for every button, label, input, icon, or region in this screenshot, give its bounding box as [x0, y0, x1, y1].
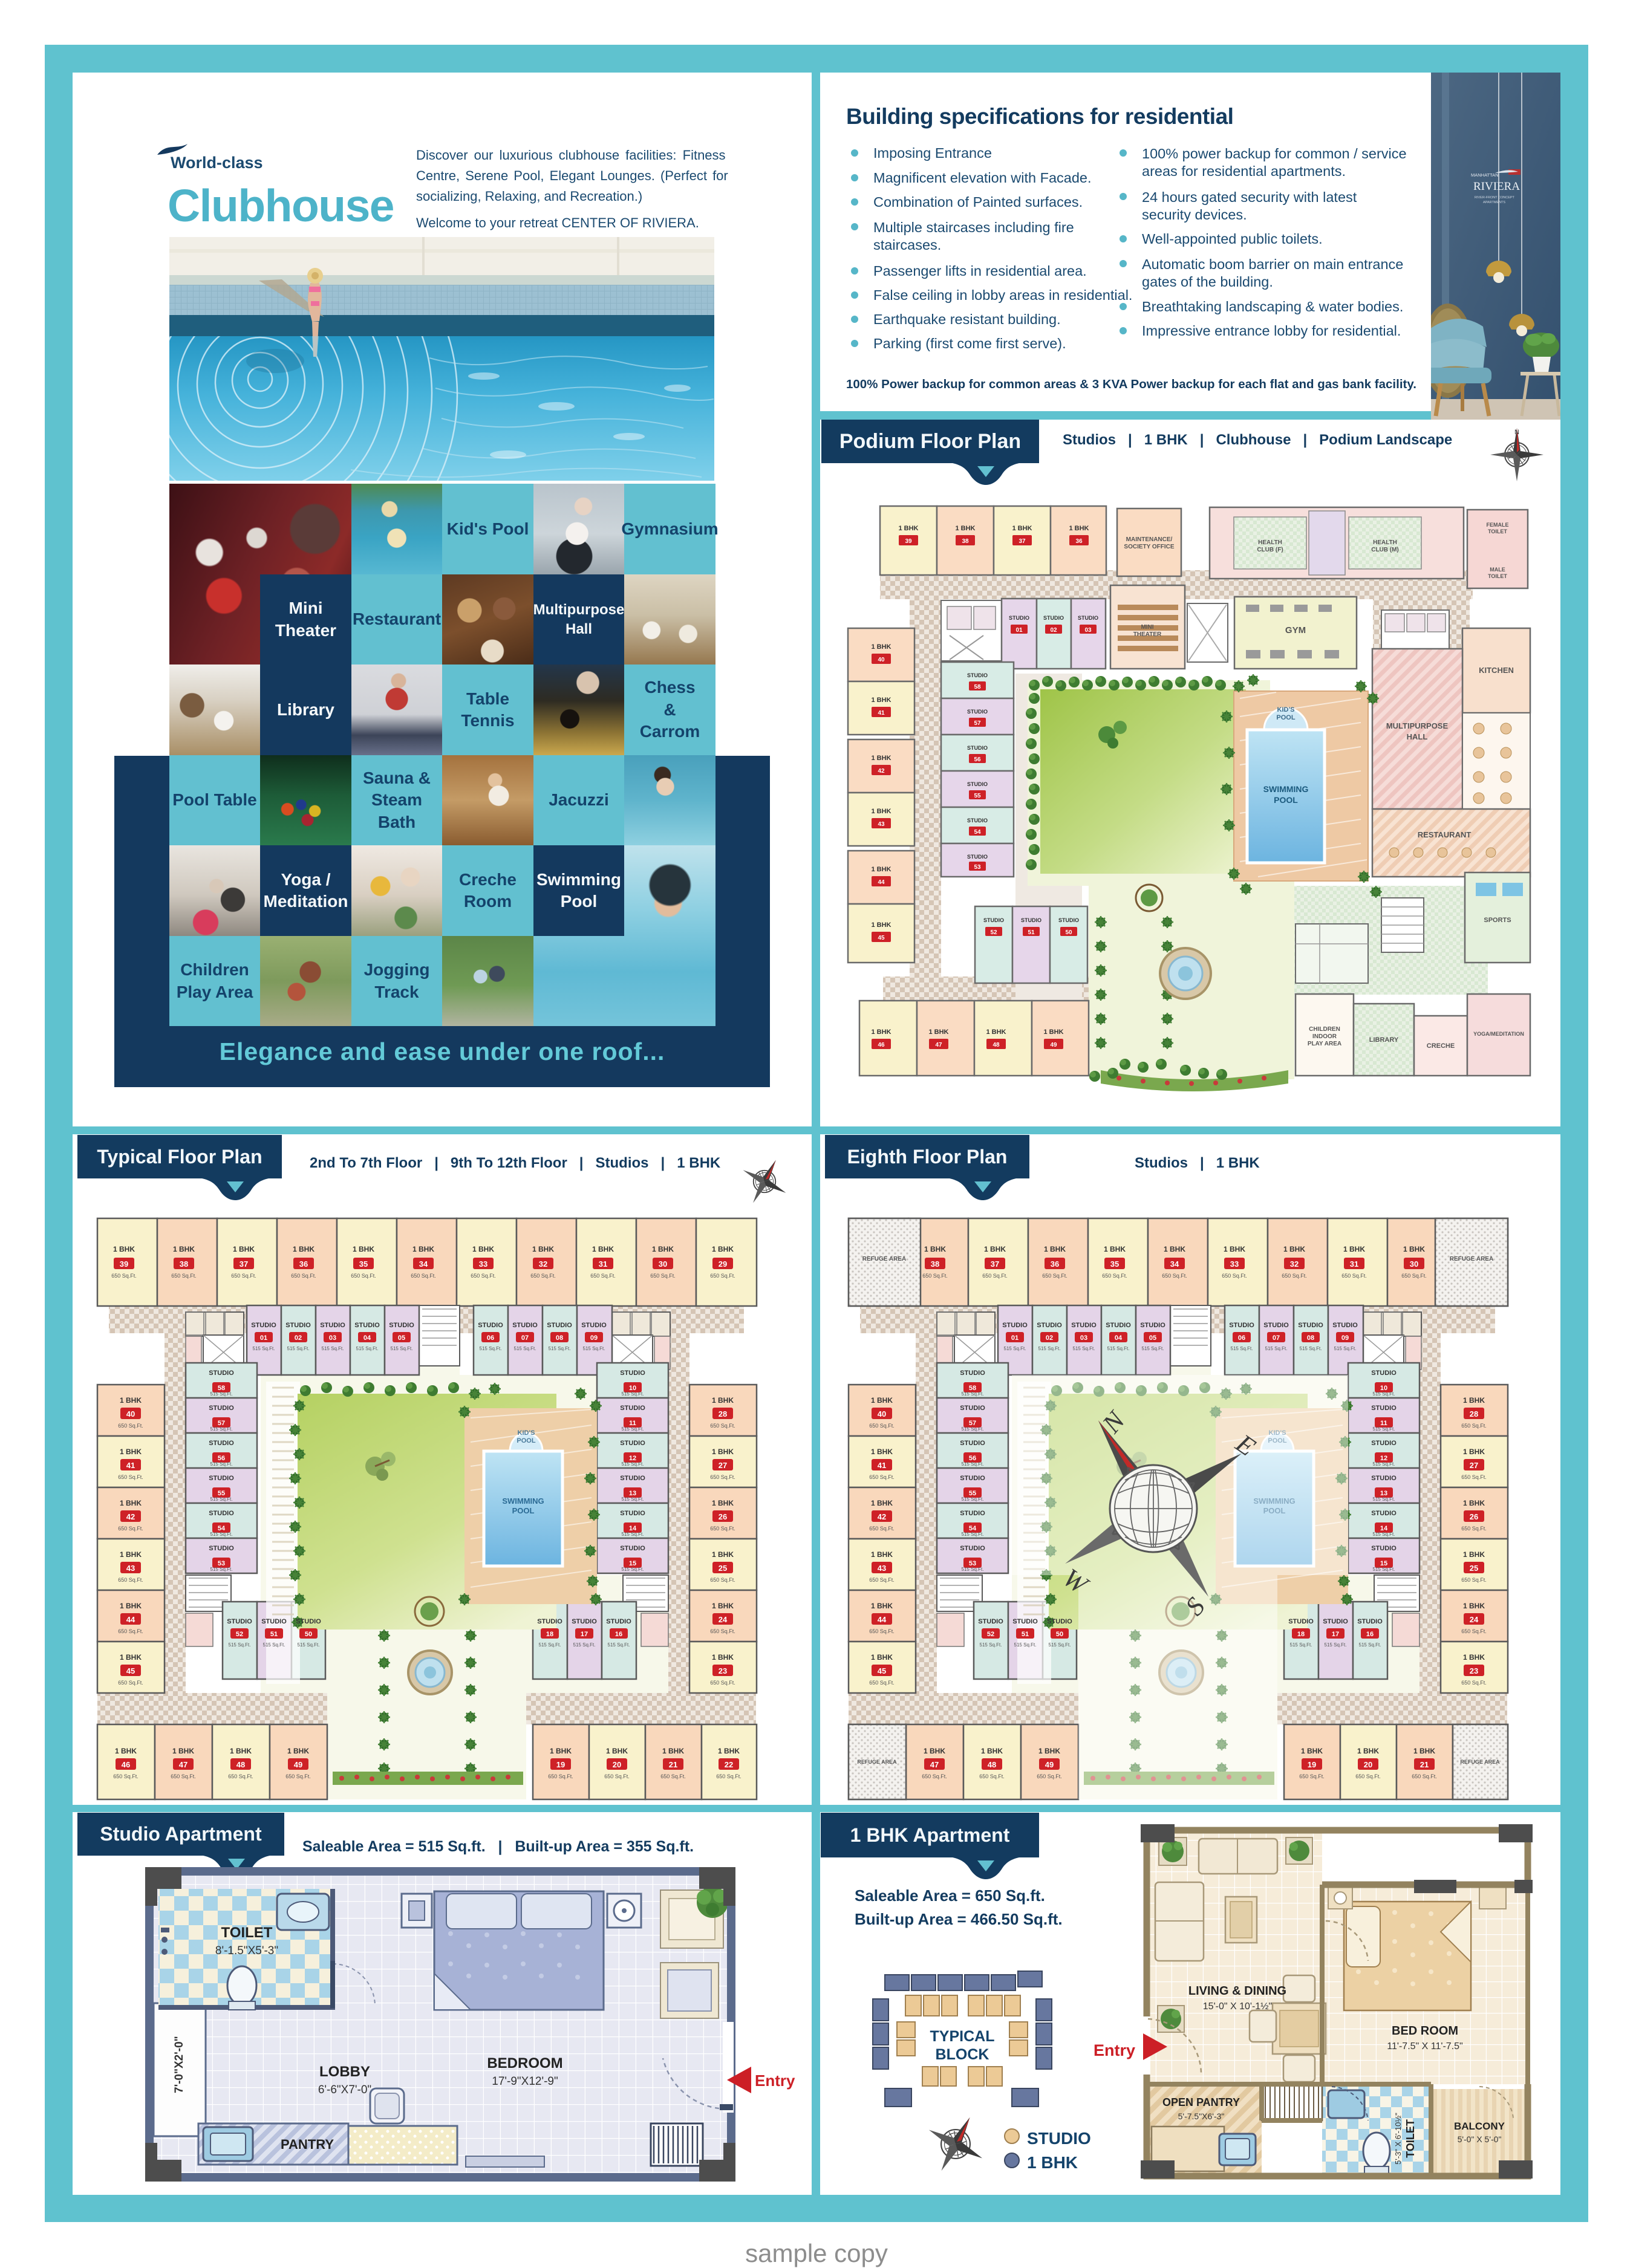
svg-text:TOILET: TOILET [1404, 2119, 1416, 2158]
svg-text:17'-9"X12'-9": 17'-9"X12'-9" [492, 2075, 558, 2088]
svg-text:STUDIO: STUDIO [296, 1618, 321, 1625]
svg-text:STUDIO: STUDIO [967, 781, 988, 787]
svg-text:STUDIO: STUDIO [967, 709, 988, 715]
svg-text:51: 51 [1028, 929, 1035, 936]
svg-text:SWIMMING: SWIMMING [502, 1496, 544, 1506]
svg-text:PANTRY: PANTRY [281, 2137, 334, 2152]
svg-text:MULTIPURPOSE: MULTIPURPOSE [1386, 721, 1449, 730]
svg-text:THEATER: THEATER [1133, 631, 1162, 638]
svg-text:24: 24 [719, 1615, 728, 1624]
svg-text:1 BHK: 1 BHK [412, 1245, 434, 1253]
svg-text:STUDIO: STUDIO [354, 1322, 380, 1329]
svg-text:1 BHK: 1 BHK [652, 1245, 674, 1253]
svg-text:47: 47 [935, 1042, 942, 1048]
svg-text:25: 25 [719, 1564, 727, 1573]
svg-text:33: 33 [479, 1259, 487, 1269]
svg-text:STUDIO: STUDIO [320, 1322, 345, 1329]
svg-text:515 Sq.Ft.: 515 Sq.Ft. [210, 1567, 233, 1572]
svg-text:STUDIO: STUDIO [606, 1618, 631, 1625]
svg-text:51: 51 [270, 1631, 278, 1638]
svg-text:YOGA/MEDITATION: YOGA/MEDITATION [1473, 1031, 1524, 1037]
svg-text:39: 39 [905, 538, 912, 545]
svg-text:515 Sq.Ft.: 515 Sq.Ft. [480, 1346, 502, 1351]
svg-text:650 Sq.Ft.: 650 Sq.Ft. [118, 1628, 143, 1634]
svg-text:LIVING & DINING: LIVING & DINING [1188, 1984, 1286, 1998]
svg-text:515 Sq.Ft.: 515 Sq.Ft. [210, 1391, 233, 1397]
svg-text:44: 44 [126, 1615, 135, 1624]
svg-text:CLUB (M): CLUB (M) [1371, 547, 1399, 553]
svg-text:KID'S: KID'S [1277, 706, 1295, 713]
svg-text:STUDIO: STUDIO [572, 1618, 597, 1625]
svg-text:515 Sq.Ft.: 515 Sq.Ft. [210, 1532, 233, 1537]
svg-text:50: 50 [305, 1631, 312, 1638]
svg-text:03: 03 [329, 1334, 336, 1342]
svg-text:650 Sq.Ft.: 650 Sq.Ft. [118, 1423, 143, 1429]
svg-text:STUDIO: STUDIO [209, 1510, 234, 1517]
svg-text:REFUGE AREA: REFUGE AREA [857, 1759, 897, 1765]
svg-text:SPORTS: SPORTS [1484, 917, 1511, 924]
svg-text:6'-6"X7'-0": 6'-6"X7'-0" [318, 2084, 371, 2096]
svg-text:1 BHK: 1 BHK [120, 1602, 142, 1610]
svg-text:1 BHK: 1 BHK [712, 1653, 734, 1662]
svg-text:650 Sq.Ft.: 650 Sq.Ft. [650, 1273, 676, 1279]
svg-text:5'-0" X 5'-0": 5'-0" X 5'-0" [1458, 2134, 1502, 2144]
svg-text:1 BHK: 1 BHK [662, 1747, 684, 1755]
svg-text:515 Sq.Ft.: 515 Sq.Ft. [229, 1642, 251, 1648]
svg-text:1 BHK: 1 BHK [955, 525, 975, 532]
svg-text:1 BHK: 1 BHK [120, 1448, 142, 1456]
svg-text:650 Sq.Ft.: 650 Sq.Ft. [660, 1773, 686, 1779]
svg-text:52: 52 [990, 929, 997, 936]
svg-text:STUDIO: STUDIO [478, 1322, 503, 1329]
svg-text:650 Sq.Ft.: 650 Sq.Ft. [710, 1628, 735, 1634]
svg-text:1 BHK: 1 BHK [871, 755, 891, 762]
svg-text:42: 42 [126, 1512, 135, 1521]
svg-text:1 BHK: 1 BHK [871, 697, 891, 704]
svg-text:STUDIO: STUDIO [983, 917, 1004, 923]
svg-text:1 BHK: 1 BHK [113, 1245, 135, 1253]
svg-text:BALCONY: BALCONY [1454, 2120, 1505, 2132]
svg-text:SOCIETY OFFICE: SOCIETY OFFICE [1124, 544, 1174, 550]
svg-text:1 BHK: 1 BHK [293, 1245, 315, 1253]
svg-text:5'-3" X 6'-10½": 5'-3" X 6'-10½" [1393, 2113, 1403, 2165]
svg-text:43: 43 [878, 821, 885, 828]
svg-text:02: 02 [1050, 627, 1057, 634]
svg-text:48: 48 [236, 1760, 245, 1769]
svg-text:515 Sq.Ft.: 515 Sq.Ft. [210, 1426, 233, 1432]
svg-text:515 Sq.Ft.: 515 Sq.Ft. [298, 1642, 320, 1648]
svg-text:650 Sq.Ft.: 650 Sq.Ft. [171, 1273, 197, 1279]
svg-text:1 BHK: 1 BHK [606, 1747, 628, 1755]
svg-text:STUDIO: STUDIO [209, 1370, 234, 1377]
svg-text:STUDIO: STUDIO [620, 1545, 645, 1552]
svg-text:650 Sq.Ft.: 650 Sq.Ft. [118, 1526, 143, 1532]
svg-text:07: 07 [521, 1334, 529, 1342]
svg-text:1 BHK: 1 BHK [986, 1028, 1006, 1036]
svg-text:RESTAURANT: RESTAURANT [1418, 830, 1472, 839]
svg-text:515 Sq.Ft.: 515 Sq.Ft. [622, 1426, 644, 1432]
svg-text:01: 01 [1015, 627, 1023, 634]
svg-text:1 BHK: 1 BHK [871, 643, 891, 651]
svg-text:STUDIO: STUDIO [620, 1370, 645, 1377]
svg-text:1 BHK: 1 BHK [1069, 525, 1089, 532]
svg-text:15'-0" X 10'-1½": 15'-0" X 10'-1½" [1203, 2001, 1272, 2012]
svg-text:650 Sq.Ft.: 650 Sq.Ft. [710, 1474, 735, 1480]
svg-text:POOL: POOL [517, 1437, 535, 1444]
svg-text:LOBBY: LOBBY [319, 2064, 370, 2080]
svg-text:STUDIO: STUDIO [1043, 615, 1064, 621]
svg-text:1 BHK: 1 BHK [871, 808, 891, 815]
svg-text:650 Sq.Ft.: 650 Sq.Ft. [228, 1773, 253, 1779]
svg-text:46: 46 [878, 1042, 885, 1048]
svg-text:03: 03 [1084, 627, 1092, 634]
svg-text:50: 50 [1065, 929, 1072, 936]
svg-text:STUDIO: STUDIO [285, 1322, 311, 1329]
svg-text:515 Sq.Ft.: 515 Sq.Ft. [549, 1346, 571, 1351]
svg-text:STUDIO: STUDIO [620, 1405, 645, 1412]
svg-text:STUDIO: STUDIO [967, 854, 988, 860]
svg-text:650 Sq.Ft.: 650 Sq.Ft. [118, 1474, 143, 1480]
svg-text:BEDROOM: BEDROOM [487, 2055, 562, 2071]
svg-text:1 BHK: 1 BHK [1012, 525, 1032, 532]
svg-text:1 BHK: 1 BHK [532, 1245, 554, 1253]
svg-text:05: 05 [398, 1334, 405, 1342]
svg-text:650 Sq.Ft.: 650 Sq.Ft. [231, 1273, 256, 1279]
svg-text:1 BHK: 1 BHK [230, 1747, 252, 1755]
svg-text:515 Sq.Ft.: 515 Sq.Ft. [573, 1642, 596, 1648]
svg-text:MALE: MALE [1490, 567, 1505, 573]
svg-text:11'-7.5" X 11'-7.5": 11'-7.5" X 11'-7.5" [1387, 2041, 1462, 2052]
svg-text:STUDIO: STUDIO [620, 1510, 645, 1517]
svg-text:650 Sq.Ft.: 650 Sq.Ft. [291, 1273, 316, 1279]
svg-text:23: 23 [719, 1666, 727, 1675]
svg-text:49: 49 [1050, 1042, 1057, 1048]
svg-text:POOL: POOL [512, 1506, 535, 1515]
svg-text:17: 17 [581, 1631, 588, 1638]
svg-text:48: 48 [993, 1042, 1000, 1048]
svg-text:515 Sq.Ft.: 515 Sq.Ft. [210, 1496, 233, 1502]
svg-text:43: 43 [126, 1564, 135, 1573]
svg-text:650 Sq.Ft.: 650 Sq.Ft. [710, 1526, 735, 1532]
svg-text:56: 56 [974, 756, 981, 763]
svg-text:31: 31 [599, 1259, 607, 1269]
svg-text:38: 38 [962, 538, 969, 545]
svg-text:650 Sq.Ft.: 650 Sq.Ft. [411, 1273, 436, 1279]
svg-text:1 BHK: 1 BHK [712, 1550, 734, 1559]
svg-text:HEALTH: HEALTH [1373, 539, 1397, 546]
svg-text:49: 49 [294, 1760, 302, 1769]
svg-text:40: 40 [878, 657, 885, 663]
svg-text:515 Sq.Ft.: 515 Sq.Ft. [287, 1346, 310, 1351]
svg-text:09: 09 [590, 1334, 598, 1342]
svg-text:N: N [1514, 429, 1519, 436]
svg-text:1 BHK: 1 BHK [120, 1396, 142, 1405]
svg-text:Entry: Entry [755, 2071, 795, 2090]
svg-text:515 Sq.Ft.: 515 Sq.Ft. [539, 1642, 561, 1648]
svg-text:1 BHK: 1 BHK [1043, 1028, 1063, 1036]
svg-text:650 Sq.Ft.: 650 Sq.Ft. [111, 1273, 137, 1279]
svg-text:APARTMENTS: APARTMENTS [1483, 201, 1505, 204]
svg-text:650 Sq.Ft.: 650 Sq.Ft. [118, 1577, 143, 1583]
svg-text:MINI: MINI [1141, 624, 1153, 631]
svg-text:TYPICAL: TYPICAL [930, 2028, 995, 2045]
svg-text:515 Sq.Ft.: 515 Sq.Ft. [622, 1567, 644, 1572]
svg-text:54: 54 [974, 829, 981, 836]
svg-text:STUDIO: STUDIO [1078, 615, 1098, 621]
svg-text:36: 36 [1075, 538, 1083, 545]
svg-text:1 BHK: 1 BHK [120, 1550, 142, 1559]
svg-text:1 BHK: 1 BHK [712, 1396, 734, 1405]
svg-text:OPEN PANTRY: OPEN PANTRY [1162, 2096, 1240, 2108]
svg-text:INDOOR: INDOOR [1312, 1033, 1337, 1040]
svg-text:42: 42 [878, 768, 885, 775]
svg-text:STUDIO: STUDIO [1021, 917, 1041, 923]
svg-text:7'-0"X2'-0": 7'-0"X2'-0" [173, 2036, 186, 2093]
svg-text:FEMALE: FEMALE [1487, 522, 1509, 528]
svg-text:38: 38 [180, 1259, 188, 1269]
svg-text:STUDIO: STUDIO [967, 817, 988, 824]
svg-text:LIBRARY: LIBRARY [1369, 1036, 1399, 1044]
svg-text:37: 37 [240, 1259, 248, 1269]
svg-text:06: 06 [487, 1334, 494, 1342]
svg-text:515 Sq.Ft.: 515 Sq.Ft. [263, 1642, 285, 1648]
svg-text:46: 46 [122, 1760, 130, 1769]
svg-text:22: 22 [725, 1760, 733, 1769]
svg-text:STUDIO: STUDIO [581, 1322, 607, 1329]
svg-text:36: 36 [299, 1259, 308, 1269]
svg-text:650 Sq.Ft.: 650 Sq.Ft. [113, 1773, 139, 1779]
svg-text:STUDIO: STUDIO [547, 1322, 572, 1329]
svg-text:19: 19 [556, 1760, 565, 1769]
svg-text:30: 30 [659, 1259, 667, 1269]
svg-text:47: 47 [179, 1760, 187, 1769]
svg-text:1 BHK: 1 BHK [871, 921, 891, 929]
svg-text:28: 28 [719, 1409, 727, 1418]
svg-text:8'-1.5"X5'-3": 8'-1.5"X5'-3" [215, 1945, 278, 1957]
svg-text:650 Sq.Ft.: 650 Sq.Ft. [118, 1680, 143, 1686]
svg-text:MAINTENANCE/: MAINTENANCE/ [1126, 536, 1173, 543]
svg-text:53: 53 [974, 864, 981, 871]
svg-text:STUDIO: STUDIO [1009, 615, 1029, 621]
svg-text:41: 41 [878, 710, 885, 716]
svg-text:CLUB (F): CLUB (F) [1257, 547, 1283, 553]
svg-text:1 BHK: 1 BHK [120, 1499, 142, 1507]
svg-text:STUDIO: STUDIO [389, 1322, 414, 1329]
svg-text:515 Sq.Ft.: 515 Sq.Ft. [608, 1642, 630, 1648]
svg-text:STUDIO: STUDIO [620, 1475, 645, 1482]
svg-text:1 BHK: 1 BHK [115, 1747, 137, 1755]
svg-text:45: 45 [126, 1666, 135, 1675]
svg-text:STUDIO: STUDIO [620, 1440, 645, 1447]
svg-text:POOL: POOL [1276, 714, 1295, 721]
svg-text:650 Sq.Ft.: 650 Sq.Ft. [471, 1273, 496, 1279]
svg-text:26: 26 [719, 1512, 727, 1521]
svg-text:1 BHK: 1 BHK [712, 1499, 734, 1507]
svg-text:1 BHK: 1 BHK [871, 1028, 891, 1036]
svg-text:650 Sq.Ft.: 650 Sq.Ft. [590, 1273, 616, 1279]
svg-text:34: 34 [419, 1259, 428, 1269]
svg-text:STUDIO: STUDIO [227, 1618, 252, 1625]
svg-text:55: 55 [974, 793, 981, 799]
svg-text:1 BHK: 1 BHK [898, 525, 918, 532]
svg-text:37: 37 [1019, 538, 1026, 545]
svg-text:STUDIO: STUDIO [1058, 917, 1079, 923]
svg-text:04: 04 [363, 1334, 371, 1342]
svg-text:515 Sq.Ft.: 515 Sq.Ft. [253, 1346, 275, 1351]
svg-text:32: 32 [539, 1259, 547, 1269]
svg-text:650 Sq.Ft.: 650 Sq.Ft. [351, 1273, 376, 1279]
svg-text:1 BHK: 1 BHK [871, 866, 891, 873]
svg-text:CRECHE: CRECHE [1427, 1042, 1455, 1050]
svg-text:1 BHK: 1 BHK [592, 1245, 614, 1253]
svg-text:RIVER-FRONT CONCEPT: RIVER-FRONT CONCEPT [1475, 196, 1515, 200]
svg-text:515 Sq.Ft.: 515 Sq.Ft. [514, 1346, 536, 1351]
svg-text:1 BHK: 1 BHK [550, 1747, 572, 1755]
svg-text:21: 21 [669, 1760, 677, 1769]
svg-text:650 Sq.Ft.: 650 Sq.Ft. [604, 1773, 630, 1779]
svg-text:1 BHK: 1 BHK [472, 1245, 494, 1253]
svg-text:5'-7.5"X6'-3": 5'-7.5"X6'-3" [1178, 2111, 1225, 2121]
svg-text:650 Sq.Ft.: 650 Sq.Ft. [716, 1773, 742, 1779]
svg-text:1 BHK: 1 BHK [172, 1747, 194, 1755]
svg-text:BLOCK: BLOCK [936, 2046, 989, 2063]
svg-text:44: 44 [878, 879, 885, 886]
svg-text:STUDIO: STUDIO [261, 1618, 287, 1625]
svg-text:515 Sq.Ft.: 515 Sq.Ft. [622, 1461, 644, 1467]
svg-text:515 Sq.Ft.: 515 Sq.Ft. [622, 1532, 644, 1537]
svg-text:STUDIO: STUDIO [251, 1322, 276, 1329]
svg-text:RIVIERA: RIVIERA [1473, 180, 1520, 193]
svg-text:515 Sq.Ft.: 515 Sq.Ft. [210, 1461, 233, 1467]
svg-text:SWIMMING: SWIMMING [1263, 784, 1309, 794]
svg-text:STUDIO: STUDIO [209, 1405, 234, 1412]
svg-text:650 Sq.Ft.: 650 Sq.Ft. [285, 1773, 311, 1779]
svg-text:08: 08 [556, 1334, 563, 1342]
svg-text:02: 02 [295, 1334, 302, 1342]
svg-text:515 Sq.Ft.: 515 Sq.Ft. [622, 1391, 644, 1397]
svg-text:515 Sq.Ft.: 515 Sq.Ft. [391, 1346, 413, 1351]
svg-text:20: 20 [613, 1760, 621, 1769]
svg-text:650 Sq.Ft.: 650 Sq.Ft. [710, 1680, 735, 1686]
svg-text:STUDIO: STUDIO [967, 672, 988, 678]
svg-text:650 Sq.Ft.: 650 Sq.Ft. [710, 1577, 735, 1583]
svg-text:16: 16 [615, 1631, 622, 1638]
svg-text:41: 41 [126, 1461, 135, 1470]
svg-text:HEALTH: HEALTH [1258, 539, 1282, 546]
svg-text:35: 35 [359, 1259, 368, 1269]
svg-text:40: 40 [126, 1409, 135, 1418]
svg-text:STUDIO: STUDIO [209, 1475, 234, 1482]
svg-text:REFUGE AREA: REFUGE AREA [1460, 1759, 1500, 1765]
svg-text:27: 27 [719, 1461, 727, 1470]
svg-text:1 BHK: 1 BHK [173, 1245, 195, 1253]
svg-text:STUDIO: STUDIO [209, 1440, 234, 1447]
svg-text:45: 45 [878, 935, 885, 941]
svg-text:650 Sq.Ft.: 650 Sq.Ft. [710, 1273, 735, 1279]
svg-text:1 BHK: 1 BHK [233, 1245, 255, 1253]
svg-text:1 BHK: 1 BHK [353, 1245, 374, 1253]
svg-text:650 Sq.Ft.: 650 Sq.Ft. [548, 1773, 573, 1779]
svg-text:29: 29 [719, 1259, 727, 1269]
svg-text:650 Sq.Ft.: 650 Sq.Ft. [710, 1423, 735, 1429]
svg-text:KITCHEN: KITCHEN [1479, 666, 1514, 675]
svg-text:01: 01 [260, 1334, 267, 1342]
svg-text:1 BHK: 1 BHK [718, 1747, 740, 1755]
svg-text:1 BHK: 1 BHK [712, 1245, 734, 1253]
svg-text:650 Sq.Ft.: 650 Sq.Ft. [530, 1273, 556, 1279]
svg-text:18: 18 [546, 1631, 553, 1638]
svg-text:58: 58 [974, 684, 981, 690]
svg-text:57: 57 [974, 720, 981, 727]
svg-text:MANHATTAN: MANHATTAN [1471, 172, 1499, 178]
svg-text:1 BHK: 1 BHK [712, 1602, 734, 1610]
svg-text:HALL: HALL [1407, 732, 1428, 741]
svg-text:52: 52 [236, 1631, 243, 1638]
svg-text:POOL: POOL [1274, 795, 1298, 805]
svg-text:STUDIO: STUDIO [512, 1322, 538, 1329]
svg-text:TOILET: TOILET [1488, 528, 1507, 535]
svg-text:PLAY AREA: PLAY AREA [1308, 1041, 1341, 1047]
svg-text:1 BHK: 1 BHK [712, 1448, 734, 1456]
svg-text:BED ROOM: BED ROOM [1392, 2024, 1458, 2038]
svg-text:39: 39 [120, 1259, 128, 1269]
svg-text:TOILET: TOILET [221, 1925, 273, 1941]
svg-text:515 Sq.Ft.: 515 Sq.Ft. [322, 1346, 344, 1351]
svg-text:TOILET: TOILET [1488, 573, 1507, 579]
svg-text:1 BHK: 1 BHK [120, 1653, 142, 1662]
svg-text:STUDIO: STUDIO [209, 1545, 234, 1552]
svg-text:STUDIO: STUDIO [537, 1618, 562, 1625]
svg-text:1 BHK: 1 BHK [287, 1747, 309, 1755]
svg-text:REFUGE AREA: REFUGE AREA [862, 1256, 906, 1262]
svg-text:515 Sq.Ft.: 515 Sq.Ft. [622, 1496, 644, 1502]
svg-text:KID'S: KID'S [518, 1429, 535, 1437]
svg-text:STUDIO: STUDIO [967, 745, 988, 751]
svg-text:GYM: GYM [1285, 625, 1306, 635]
svg-text:REFUGE AREA: REFUGE AREA [1450, 1256, 1493, 1262]
svg-text:CHILDREN: CHILDREN [1309, 1026, 1340, 1033]
svg-text:515 Sq.Ft.: 515 Sq.Ft. [356, 1346, 379, 1351]
svg-text:515 Sq.Ft.: 515 Sq.Ft. [583, 1346, 605, 1351]
svg-text:650 Sq.Ft.: 650 Sq.Ft. [171, 1773, 196, 1779]
svg-text:1 BHK: 1 BHK [928, 1028, 948, 1036]
